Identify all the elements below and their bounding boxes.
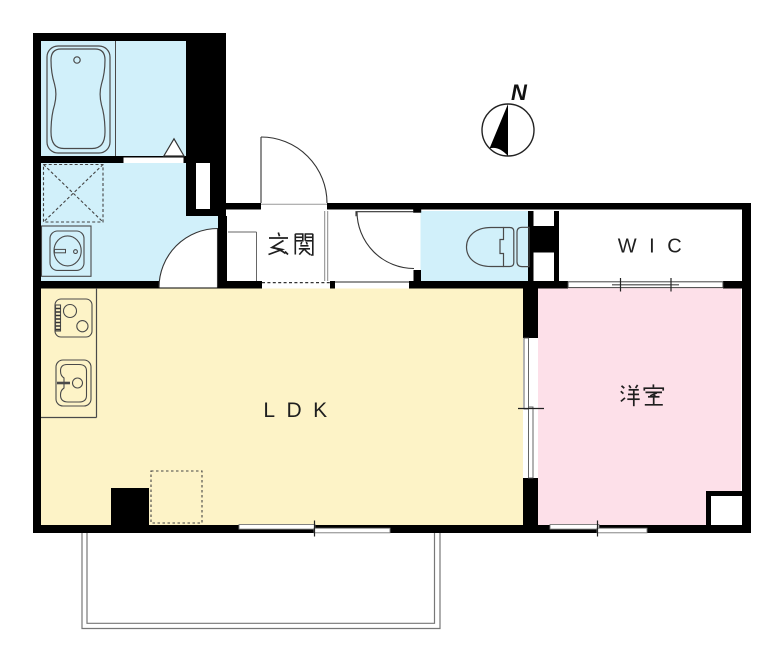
svg-text:WIC: WIC <box>618 236 694 258</box>
svg-text:LDK: LDK <box>263 399 338 422</box>
svg-text:N: N <box>511 80 528 105</box>
